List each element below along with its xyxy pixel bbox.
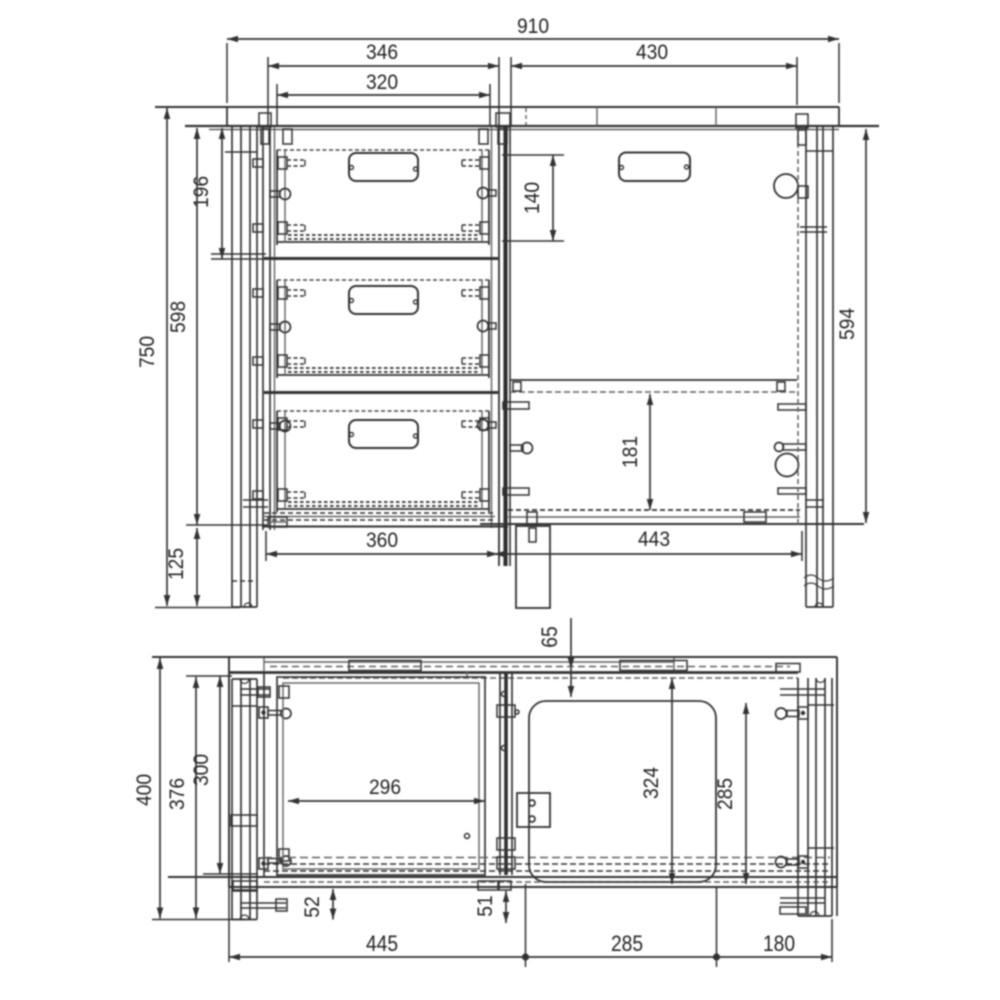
svg-text:196: 196 xyxy=(190,176,213,208)
svg-text:140: 140 xyxy=(521,182,544,214)
svg-text:285: 285 xyxy=(611,931,643,956)
svg-text:443: 443 xyxy=(638,528,670,551)
svg-text:360: 360 xyxy=(366,529,398,552)
svg-text:445: 445 xyxy=(366,931,398,956)
svg-text:430: 430 xyxy=(636,41,668,64)
svg-text:320: 320 xyxy=(366,71,398,94)
svg-text:180: 180 xyxy=(763,931,795,956)
svg-text:324: 324 xyxy=(640,767,663,799)
svg-text:400: 400 xyxy=(133,774,156,806)
svg-text:51: 51 xyxy=(474,895,497,916)
svg-text:296: 296 xyxy=(369,776,401,799)
svg-text:910: 910 xyxy=(517,15,549,38)
svg-text:376: 376 xyxy=(166,778,189,810)
svg-text:285: 285 xyxy=(714,778,737,810)
svg-text:181: 181 xyxy=(619,436,642,468)
svg-text:52: 52 xyxy=(301,896,324,917)
svg-text:750: 750 xyxy=(136,336,159,368)
svg-text:300: 300 xyxy=(190,754,213,786)
svg-text:65: 65 xyxy=(537,626,562,647)
svg-text:346: 346 xyxy=(366,41,398,64)
svg-text:594: 594 xyxy=(836,308,859,340)
svg-text:125: 125 xyxy=(165,548,188,580)
svg-text:598: 598 xyxy=(167,301,190,333)
